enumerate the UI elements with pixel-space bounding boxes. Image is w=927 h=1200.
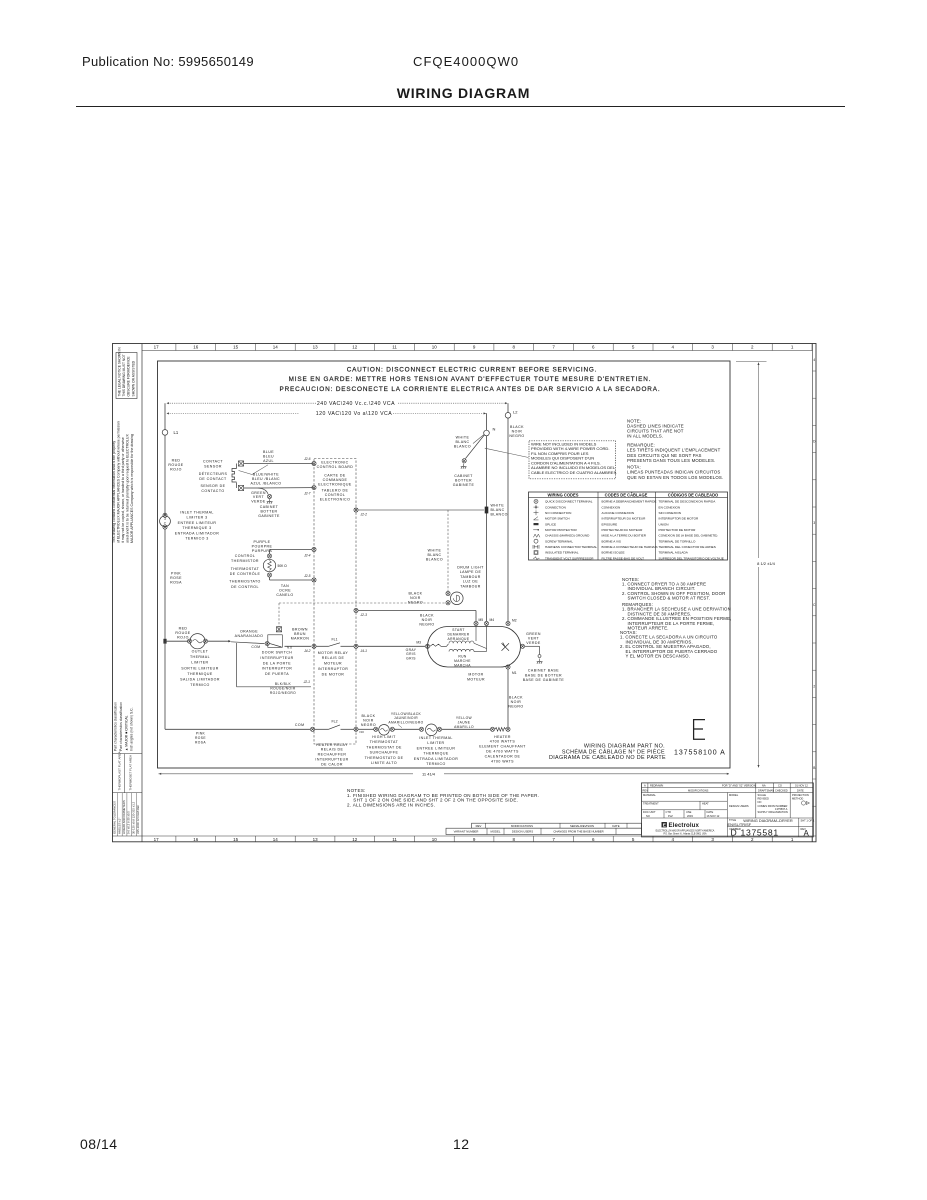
svg-text:AZUL /BLANCO: AZUL /BLANCO [251,482,282,486]
svg-text:MOTOR: MOTOR [468,673,483,677]
svg-text:BLANC: BLANC [491,508,505,512]
svg-text:USE: USE [686,810,692,814]
svg-text:BRUN: BRUN [294,632,306,636]
svg-text:TABLERO DE: TABLERO DE [322,489,349,493]
svg-text:3: 3 [711,837,714,842]
svg-text:OCRE: OCRE [279,588,291,592]
svg-text:16: 16 [193,837,199,842]
svg-text:METHOD: METHOD [792,796,803,800]
svg-text:SPLICE: SPLICE [545,522,556,526]
svg-text:L1: L1 [174,430,179,435]
svg-text:VERDE: VERDE [526,641,541,645]
svg-text:BORNE ISOLEE: BORNE ISOLEE [602,551,625,555]
svg-text:CABLE ELECTRICO DE CUATRO ALAM: CABLE ELECTRICO DE CUATRO ALAMBRES. [531,470,617,475]
svg-text:OUTLET: OUTLET [192,650,209,654]
svg-text:THERMISTOR: THERMISTOR [231,559,259,563]
svg-text:it may not be copied, shown, o: it may not be copied, shown, or handed t… [121,437,125,543]
svg-text:VERT: VERT [253,495,265,499]
svg-text:DE CONTRÔLE: DE CONTRÔLE [230,571,261,576]
svg-text:4: 4 [672,345,675,350]
svg-text:PROTECTEUR DU MOTEUR: PROTECTEUR DU MOTEUR [602,528,644,532]
svg-text:DE CONTACT: DE CONTACT [199,477,227,481]
svg-text:4: 4 [672,837,675,842]
svg-text:240 VAC\240 Vc.c.\240 VCA: 240 VAC\240 Vc.c.\240 VCA [317,401,395,407]
svg-text:This drawing contains confiden: This drawing contains confidential infor… [112,441,116,543]
svg-text:MAJOR APPLIANCES Company which: MAJOR APPLIANCES Company which is respon… [130,434,134,543]
svg-text:GRAY: GRAY [406,648,417,652]
svg-text:WHITE: WHITE [491,504,505,508]
svg-text:3: 3 [813,521,815,525]
svg-text:UNION: UNION [659,522,669,526]
svg-text:DEMARRER: DEMARRER [447,632,469,636]
svg-text:BLUE: BLUE [263,450,274,454]
svg-text:16 NOV 12: 16 NOV 12 [707,814,720,818]
svg-text:HEATER RELAY: HEATER RELAY [316,743,348,747]
svg-text:LUZ DE: LUZ DE [463,580,478,584]
svg-text:ANGLES ±1°: ANGLES ±1° [117,818,121,834]
svg-text:INTERRUPTOR DE MOTOR: INTERRUPTOR DE MOTOR [659,517,700,521]
svg-text:HARNESS CONNECTOR TERMINAL: HARNESS CONNECTOR TERMINAL [545,545,597,549]
svg-text:7: 7 [552,837,555,842]
svg-text:ROJO/NEGRO: ROJO/NEGRO [270,691,296,695]
svg-text:CABINET BASE: CABINET BASE [528,669,559,673]
svg-text:TAMBOUR: TAMBOUR [460,584,481,588]
svg-text:PINK: PINK [196,732,206,736]
svg-text:MATERIAL: MATERIAL [643,793,656,797]
svg-text:GRIS: GRIS [406,657,416,661]
svg-text:DE CALOR: DE CALOR [321,762,343,766]
svg-text:14: 14 [273,837,279,842]
svg-text:CABINET: CABINET [260,505,279,509]
svg-text:NEGRO: NEGRO [508,705,523,709]
svg-text:EPISSURE: EPISSURE [602,522,618,526]
svg-text:THE LEGAL NOTICE SHOWN IN: THE LEGAL NOTICE SHOWN IN [117,347,121,397]
svg-text:NO CONNECTION: NO CONNECTION [545,511,571,515]
svg-text:MOTOR PROTECTOR: MOTOR PROTECTOR [545,528,577,532]
svg-text:CARTE DE: CARTE DE [324,474,346,478]
svg-text:J2-2: J2-2 [360,513,368,517]
svg-text:TERMICO 3: TERMICO 3 [185,537,208,541]
svg-text:Part characteristics classifi: Part characteristics classification [119,702,123,751]
svg-text:RUN: RUN [458,655,467,659]
svg-text:THERMIQUE: THERMIQUE [187,672,213,676]
svg-text:INTERRUPTEUR: INTERRUPTEUR [260,656,293,660]
svg-text:REV: REV [643,788,649,792]
svg-text:START: START [452,628,465,632]
svg-text:CABINET: CABINET [454,474,473,478]
svg-text:YELLOW/BLACK: YELLOW/BLACK [391,712,422,716]
svg-text:DOC UNIT: DOC UNIT [643,810,656,814]
svg-text:J2-4: J2-4 [303,553,311,557]
svg-text:MISE A LA TERRE DU BOITIER: MISE A LA TERRE DU BOITIER [602,534,647,538]
svg-text:CALENTADOR DE: CALENTADOR DE [485,754,521,758]
svg-text:SWITCH CLOSED & MOTOR AT REST.: SWITCH CLOSED & MOTOR AT REST. [622,596,710,601]
svg-text:MOTEUR: MOTEUR [324,662,342,666]
svg-text:SALIDA LIMITADOR: SALIDA LIMITADOR [180,678,220,682]
svg-text:SCREW TERMINAL: SCREW TERMINAL [545,539,573,543]
svg-text:THERMOSTAT DE: THERMOSTAT DE [366,745,402,749]
svg-text:GREEN: GREEN [251,491,266,495]
svg-text:MODEL: MODEL [729,793,739,797]
svg-text:SENSOR DE: SENSOR DE [201,484,226,488]
svg-text:LINEAR AND DIAMETERS: LINEAR AND DIAMETERS [122,800,126,834]
svg-text:CONNECTION: CONNECTION [545,505,566,509]
svg-text:12: 12 [352,837,358,842]
svg-text:NOIR: NOIR [422,618,433,622]
svg-text:J4-1: J4-1 [360,649,368,653]
svg-text:ROUGE: ROUGE [175,631,190,635]
svg-text:0-6 ±0.3 6-30 ±0.5: 0-6 ±0.3 6-30 ±0.5 [127,811,131,834]
svg-text:MODIFICATIONS: MODIFICATIONS [688,788,709,792]
svg-text:17: 17 [154,345,160,350]
svg-text:ROSE: ROSE [170,576,182,580]
svg-text:BASE DE GABINETE: BASE DE GABINETE [523,678,565,682]
svg-text:BASE DE BOTTER: BASE DE BOTTER [525,673,562,677]
svg-text:M2: M2 [512,619,517,623]
svg-text:CONTROL: CONTROL [325,493,346,497]
svg-text:J2-1: J2-1 [303,680,311,684]
svg-text:M4: M4 [490,618,495,622]
svg-text:CONTACT: CONTACT [203,460,223,464]
svg-text:TERMICO: TERMICO [190,683,210,687]
svg-text:ELECTRONIC: ELECTRONIC [321,461,348,465]
svg-text:MOTOR SWITCH: MOTOR SWITCH [545,517,570,521]
svg-text:ELEMENT CHAUFFANT: ELEMENT CHAUFFANT [479,745,526,749]
svg-text:DESIGN USERS: DESIGN USERS [729,804,749,808]
svg-text:DESIGN USERS: DESIGN USERS [512,830,533,834]
svg-text:DE PUERTA: DE PUERTA [265,672,289,676]
svg-text:7: 7 [552,345,555,350]
svg-text:11: 11 [392,837,397,842]
svg-text:J2-7: J2-7 [303,492,311,496]
svg-text:NEGRO: NEGRO [509,434,524,438]
svg-text:QUE NO ESTAN EN TODOS LOS MODE: QUE NO ESTAN EN TODOS LOS MODELOS. [627,475,723,480]
svg-text:SUPRESOR DEL TRANSITORIO DE VO: SUPRESOR DEL TRANSITORIO DE VOLTAJE [659,556,724,560]
svg-text:2003: 2003 [687,814,693,818]
svg-text:CONEXION DE (A BASE DEL GABINE: CONEXION DE (A BASE DEL GABINETE) [659,534,718,538]
svg-text:THERMOSTATO DE: THERMOSTATO DE [365,756,404,760]
svg-text:BLANC: BLANC [455,440,469,444]
svg-text:INTERRUPTEUR: INTERRUPTEUR [315,758,348,762]
svg-text:ROSE: ROSE [195,736,206,740]
svg-text:BLANCO: BLANCO [491,512,508,516]
svg-text:INTERRUPTOR: INTERRUPTOR [262,667,293,671]
svg-text:BOTTER: BOTTER [455,479,472,483]
svg-text:NOIR: NOIR [410,596,421,600]
svg-text:BLACK: BLACK [510,425,524,429]
svg-text:DRAFTSMAN: DRAFTSMAN [758,788,774,792]
svg-text:M1: M1 [512,671,517,675]
svg-text:TREATMENT: TREATMENT [643,802,659,806]
svg-text:THERMIQUE 3: THERMIQUE 3 [182,526,211,530]
svg-text:RED: RED [179,627,188,631]
svg-text:THERMOSTATO: THERMOSTATO [229,580,261,584]
svg-text:PURPLE: PURPLE [254,540,271,544]
svg-text:SORTIE LIMITEUR: SORTIE LIMITEUR [181,666,218,670]
svg-text:REDRAWN: REDRAWN [650,783,663,787]
svg-text:BLEU /BLANC: BLEU /BLANC [252,477,280,481]
svg-text:▲ MAJOR ■ CRITICAL: ▲ MAJOR ■ CRITICAL [124,715,128,751]
svg-text:MODIFICATIONS: MODIFICATIONS [511,824,533,828]
svg-text:NOIR: NOIR [363,718,374,722]
svg-text:EN CONEXION: EN CONEXION [659,505,681,509]
svg-text:INTERRUPTOR: INTERRUPTOR [318,667,349,671]
svg-text:NA: NA [762,783,766,787]
svg-text:3: 3 [164,517,166,521]
svg-text:LIMITER: LIMITER [427,741,444,745]
svg-text:9: 9 [473,837,476,842]
svg-text:HIGH LIMIT: HIGH LIMIT [372,735,396,739]
svg-text:ELECTROLUX MAJOR APPLIANCES NO: ELECTROLUX MAJOR APPLIANCES NORTH AMERIC… [656,829,715,832]
svg-text:TAMBOUR: TAMBOUR [460,575,481,579]
svg-text:CONTROL BOARD: CONTROL BOARD [317,465,354,469]
svg-text:CHECKED: CHECKED [775,788,788,792]
svg-text:DÉTECTEURS: DÉTECTEURS [199,471,228,476]
svg-text:2: 2 [751,345,754,350]
svg-text:14: 14 [273,345,279,350]
svg-text:RECHAUFFER: RECHAUFFER [318,753,347,757]
svg-text:DE MOTOR: DE MOTOR [322,672,345,676]
svg-text:13: 13 [313,345,319,350]
svg-text:M5: M5 [479,618,484,622]
svg-text:LIMITE ALTO: LIMITE ALTO [371,761,397,765]
svg-text:INTERRUPTEUR DU MOTEUR: INTERRUPTEUR DU MOTEUR [602,517,647,521]
svg-text:ROUGE/NOIR: ROUGE/NOIR [270,687,295,691]
svg-text:BLACK: BLACK [509,696,523,700]
svg-text:DRUM LIGHT: DRUM LIGHT [457,566,484,570]
svg-text:AUCUNE CONNEXION: AUCUNE CONNEXION [602,511,635,515]
svg-text:5: 5 [632,837,635,842]
svg-text:BLK/BLK: BLK/BLK [275,682,292,686]
svg-text:BLACK: BLACK [409,592,423,596]
svg-text:GABINETE: GABINETE [258,514,280,518]
svg-text:GREEN: GREEN [526,632,541,636]
svg-text:BROWN: BROWN [292,628,308,632]
svg-text:CHANGES FROM THE BASE NUMBER: CHANGES FROM THE BASE NUMBER [553,830,603,834]
svg-text:ROSA: ROSA [170,581,182,585]
svg-text:SENSOR: SENSOR [204,465,222,469]
svg-text:IN ALL MODELS.: IN ALL MODELS. [627,434,663,439]
svg-text:RELAIS DE: RELAIS DE [321,748,344,752]
svg-text:MARCHE: MARCHE [454,659,471,663]
svg-text:DIAGRAMA DE CABLEADO NO DE: DIAGRAMA DE CABLEADO NO DE PARTE [549,755,666,761]
svg-text:QUICK DISCONNECT TERMINAL: QUICK DISCONNECT TERMINAL [545,500,593,504]
svg-text:SCALE: SCALE [758,793,767,797]
svg-text:ROJO: ROJO [177,636,189,640]
svg-text:AMARILLO/NEGRO: AMARILLO/NEGRO [388,721,423,725]
svg-text:SHOWN OR ASSISTED: SHOWN OR ASSISTED [131,360,135,396]
svg-text:120 VAC\120 Vo a\120 VCA: 120 VAC\120 Vo a\120 VCA [316,411,393,417]
svg-text:THERMAL: THERMAL [190,655,210,659]
svg-text:A: A [804,829,810,838]
svg-text:BLANC: BLANC [427,553,441,557]
svg-text:BLANCO: BLANCO [426,557,443,561]
svg-text:ROUGE: ROUGE [168,463,183,467]
svg-text:315-1000 ±2 FILM REF: 315-1000 ±2 FILM REF [136,805,140,834]
svg-text:BLEU: BLEU [263,454,274,458]
svg-text:CO: CO [778,783,782,787]
svg-text:BORNE A CONNECTEUR DE HARNAIS: BORNE A CONNECTEUR DE HARNAIS [602,545,658,549]
svg-text:CANELO: CANELO [276,593,293,597]
svg-text:Inch angles (not shown) S.C.: Inch angles (not shown) S.C. [130,707,134,751]
svg-text:16: 16 [193,345,199,350]
svg-text:ELECTRONICO: ELECTRONICO [320,498,351,502]
svg-text:WIRING CODES: WIRING CODES [548,492,579,497]
svg-text:ELECTRONIQUE: ELECTRONIQUE [318,483,352,487]
svg-text:MOTOR RELAY: MOTOR RELAY [318,651,349,655]
svg-text:8: 8 [513,837,516,842]
svg-text:MARCHA: MARCHA [454,663,471,667]
svg-text:NEGRO: NEGRO [419,623,434,627]
svg-text:Y EL MOTOR EN DESCANSO.: Y EL MOTOR EN DESCANSO. [620,654,690,659]
svg-text:TERMICO: TERMICO [426,762,446,766]
svg-text:HEATER: HEATER [494,735,511,739]
svg-text:OBSCURE FORM/DEVICE: OBSCURE FORM/DEVICE [127,356,131,397]
svg-text:15: 15 [233,345,239,350]
svg-text:VERDE: VERDE [251,500,266,504]
svg-text:15: 15 [233,837,239,842]
svg-text:DE LA PORTE: DE LA PORTE [263,661,291,665]
svg-text:SERIAL/REVISION: SERIAL/REVISION [570,824,594,828]
svg-text:JAUNE/NOIR: JAUNE/NOIR [394,716,418,720]
svg-text:THERMOSET FLAT AREA: THERMOSET FLAT AREA [129,755,133,791]
svg-text:THIS DRAWING MUST NOT: THIS DRAWING MUST NOT [122,354,126,396]
svg-text:PURPURA: PURPURA [252,549,273,553]
svg-text:GRIS: GRIS [406,652,416,656]
svg-text:INLET THERMAL: INLET THERMAL [180,511,214,515]
svg-text:RELAIS DE: RELAIS DE [322,656,345,660]
svg-text:LIMITER: LIMITER [191,661,208,665]
svg-text:B: B [813,766,815,770]
svg-text:MOTEUR: MOTEUR [467,678,485,682]
svg-text:PROTECTOR DE MOTOR: PROTECTOR DE MOTOR [659,528,697,532]
svg-text:01 NOV 12: 01 NOV 12 [795,783,808,787]
svg-text:FOR “D” AND “02” VERSION: FOR “D” AND “02” VERSION [722,783,756,787]
svg-text:COM: COM [251,645,260,649]
svg-text:4700 WATS: 4700 WATS [491,759,514,763]
svg-text:BORNE A VIS: BORNE A VIS [602,539,621,543]
svg-text:PLZ: PLZ [668,814,673,818]
svg-text:BORNE A DEBRANCHEMENT RAPIDE: BORNE A DEBRANCHEMENT RAPIDE [602,500,657,504]
svg-text:MISE EN GARDE: METTRE HORS: MISE EN GARDE: METTRE HORS TENSION AVANT… [289,376,652,383]
svg-text:NO: NO [758,800,762,804]
svg-text:FILTRE PASSE-BAS DE VOLT: FILTRE PASSE-BAS DE VOLT [602,556,645,560]
svg-text:SURCHAUFFE: SURCHAUFFE [370,751,399,755]
svg-text:used and it is to be returned: used and it is to be returned promptly u… [126,434,130,543]
svg-text:INLET THERMAL: INLET THERMAL [419,736,453,740]
svg-text:E: E [663,823,666,828]
svg-text:CÓDIGOS DE CABLEADO: CÓDIGOS DE CABLEADO [668,492,719,497]
svg-text:D 1375581: D 1375581 [731,827,779,837]
svg-text:INSULATED TERMINAL: INSULATED TERMINAL [545,551,579,555]
svg-text:DATE: DATE [797,788,804,792]
svg-text:4700 WATTS: 4700 WATTS [490,740,516,744]
svg-text:6: 6 [592,345,595,350]
svg-text:ARRANQUE: ARRANQUE [448,637,470,641]
svg-text:REV: REV [476,824,482,828]
svg-text:WHITE: WHITE [428,549,442,553]
svg-text:PRESENTS DANS TOUS LES MODELES: PRESENTS DANS TOUS LES MODELES. [627,458,715,463]
svg-text:NEGRO: NEGRO [361,723,376,727]
svg-text:VARIANT NUMBER: VARIANT NUMBER [454,830,479,834]
svg-text:THERMOPLAST FLAT AREA: THERMOPLAST FLAT AREA [118,751,122,790]
svg-text:WHITE: WHITE [456,436,470,440]
svg-text:BLACK: BLACK [362,714,376,718]
svg-text:MARRON: MARRON [291,637,309,641]
svg-text:11 41/4: 11 41/4 [422,772,436,777]
svg-text:J4-2: J4-2 [303,649,311,653]
svg-text:8 1/2 ±1/4: 8 1/2 ±1/4 [757,561,776,566]
svg-text:J2-3: J2-3 [360,613,368,617]
svg-text:LAMPE DE: LAMPE DE [460,570,482,574]
svg-text:NOIR: NOIR [512,429,523,433]
svg-text:DATE: DATE [612,824,619,828]
svg-text:THERMOSTAT: THERMOSTAT [370,740,399,744]
svg-text:MODEL: MODEL [491,830,501,834]
svg-text:GENERAL TOLERANCES: GENERAL TOLERANCES [113,801,117,834]
svg-text:CONNEXION: CONNEXION [602,505,621,509]
svg-text:10: 10 [432,345,438,350]
svg-text:FL1: FL1 [331,638,337,642]
svg-text:SUPPLY ORGANIZATION: SUPPLY ORGANIZATION [758,810,788,814]
svg-text:PRECAUCION: DESCONECTE LA C: PRECAUCION: DESCONECTE LA CORRIENTE ELEC… [279,386,660,393]
svg-text:PROJECTION: PROJECTION [792,793,809,797]
svg-text:9: 9 [473,345,476,350]
svg-text:COM: COM [295,723,305,727]
svg-text:13: 13 [313,837,319,842]
svg-text:8: 8 [513,345,516,350]
svg-text:NEGRO: NEGRO [408,601,423,605]
svg-text:GABINETE: GABINETE [453,483,475,487]
svg-text:of ELECTROLUX MAJOR APPLIANCES: of ELECTROLUX MAJOR APPLIANCES Company w… [117,421,121,543]
svg-text:3: 3 [711,345,714,350]
svg-text:ROSA: ROSA [195,741,206,745]
svg-text:NO: NO [360,730,365,734]
svg-text:PINK: PINK [171,572,181,576]
svg-text:LIMITER 3: LIMITER 3 [187,516,208,520]
svg-text:A: A [644,783,646,787]
svg-text:VERT: VERT [528,636,540,640]
svg-text:10: 10 [432,837,438,842]
svg-text:SIN CONEXION: SIN CONEXION [659,511,682,515]
svg-text:THERMOSTAT: THERMOSTAT [231,567,260,571]
svg-text:30-120 ±0.8 120-315 ±1.2: 30-120 ±0.8 120-315 ±1.2 [131,801,135,834]
svg-text:RED: RED [172,459,181,463]
svg-text:CONTROL: CONTROL [235,554,256,558]
svg-text:N: N [493,427,496,432]
svg-text:J2-5: J2-5 [303,574,311,578]
svg-text:THERMIQUE: THERMIQUE [423,752,449,756]
svg-text:TERMINAL DEL CONECTOR DE ARNES: TERMINAL DEL CONECTOR DE ARNES [659,545,716,549]
svg-text:ANARANJADO: ANARANJADO [235,634,264,638]
svg-text:Electrolux: Electrolux [669,822,700,829]
svg-text:CTR: CTR [666,810,671,814]
svg-text:SHT 1 OF 1: SHT 1 OF 1 [801,818,815,822]
svg-text:AZUL: AZUL [263,459,274,463]
svg-text:POURPRE: POURPRE [252,544,273,548]
svg-text:NOIR: NOIR [511,700,522,704]
svg-text:12: 12 [352,345,358,350]
svg-text:CHASSIS (MARKED) GROUND: CHASSIS (MARKED) GROUND [545,534,590,538]
svg-text:2: 2 [751,837,754,842]
svg-text:BLUE/WHITE: BLUE/WHITE [253,473,279,477]
svg-text:Part characteristics classifi: Part characteristics classification [114,702,118,751]
svg-text:11: 11 [392,345,397,350]
svg-text:J2-6: J2-6 [303,457,311,461]
svg-text:CONTACTO: CONTACTO [201,489,224,493]
svg-text:TERMINAL AISLADA: TERMINAL AISLADA [659,551,689,555]
svg-text:ORANGE: ORANGE [240,630,258,634]
